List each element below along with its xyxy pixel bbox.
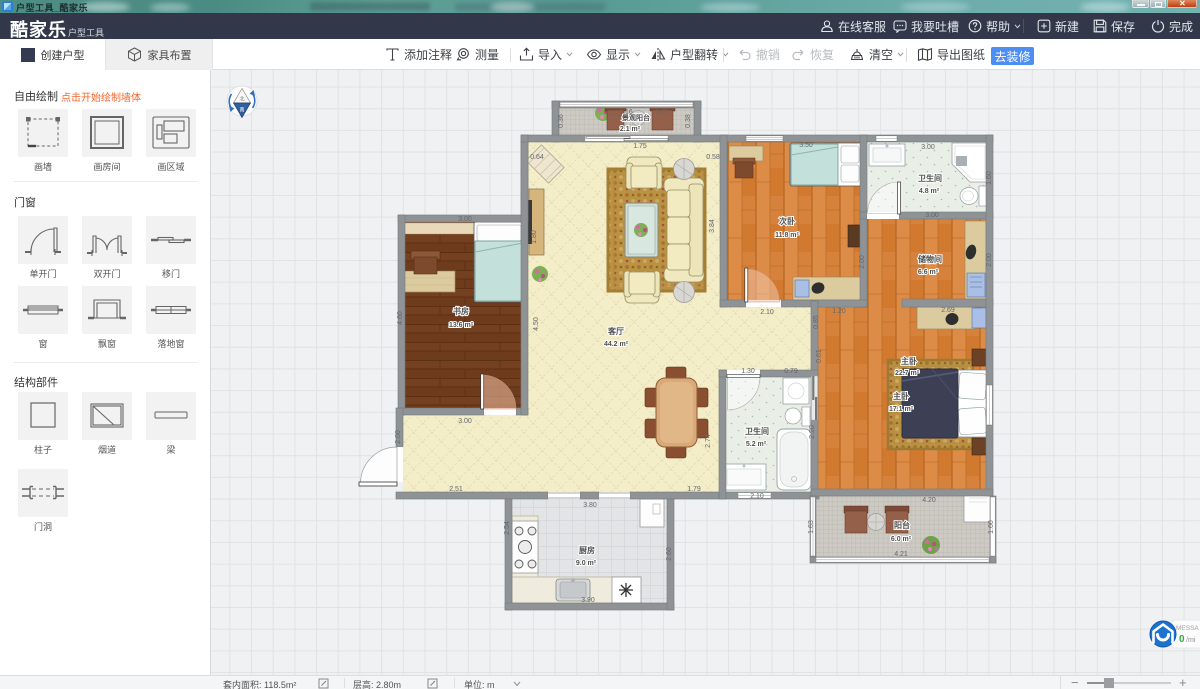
svg-text:/mi: /mi — [1186, 637, 1196, 644]
svg-text:0.61: 0.61 — [816, 349, 823, 363]
svg-text:2.54: 2.54 — [504, 521, 511, 535]
svg-text:2.00: 2.00 — [859, 255, 866, 269]
svg-text:3.80: 3.80 — [583, 502, 597, 509]
svg-text:2.10: 2.10 — [760, 309, 774, 316]
svg-text:2.20: 2.20 — [809, 425, 816, 439]
svg-text:4.21: 4.21 — [894, 551, 908, 558]
svg-text:1.20: 1.20 — [832, 308, 846, 315]
svg-text:主卧: 主卧 — [901, 356, 917, 366]
svg-text:5.2 m²: 5.2 m² — [746, 441, 767, 448]
svg-text:南: 南 — [239, 107, 244, 114]
svg-text:2.1 m²: 2.1 m² — [620, 126, 641, 133]
svg-text:客厅: 客厅 — [607, 326, 624, 336]
svg-text:1.60: 1.60 — [986, 171, 993, 185]
svg-text:3.90: 3.90 — [581, 597, 595, 604]
svg-text:主卧: 主卧 — [893, 391, 909, 401]
svg-text:书房: 书房 — [453, 306, 469, 316]
svg-text:3.00: 3.00 — [458, 216, 472, 223]
svg-text:6.6 m²: 6.6 m² — [918, 269, 939, 276]
svg-text:3.00: 3.00 — [925, 212, 939, 219]
svg-text:2.69: 2.69 — [941, 307, 955, 314]
svg-text:0.75: 0.75 — [655, 109, 669, 116]
svg-text:2.74: 2.74 — [705, 434, 712, 448]
svg-text:储物间: 储物间 — [917, 254, 942, 264]
svg-text:0.85: 0.85 — [813, 315, 820, 329]
svg-text:1.75: 1.75 — [633, 143, 647, 150]
svg-text:北: 北 — [239, 96, 244, 103]
svg-text:4.60: 4.60 — [397, 311, 404, 325]
svg-text:厨房: 厨房 — [579, 545, 595, 555]
svg-text:卫生间: 卫生间 — [918, 173, 942, 183]
svg-text:1.80: 1.80 — [531, 230, 538, 244]
svg-text:0.58: 0.58 — [706, 154, 720, 161]
svg-text:2.60: 2.60 — [666, 547, 673, 561]
svg-text:2.51: 2.51 — [449, 486, 463, 493]
svg-text:0: 0 — [1179, 634, 1185, 645]
svg-text:4.50: 4.50 — [533, 317, 540, 331]
svg-text:17.1 m²: 17.1 m² — [889, 406, 914, 413]
svg-text:1.79: 1.79 — [687, 486, 701, 493]
svg-text:11.8 m²: 11.8 m² — [775, 232, 799, 239]
svg-text:2.00: 2.00 — [395, 430, 402, 444]
svg-text:阳台: 阳台 — [894, 520, 910, 530]
svg-text:3.00: 3.00 — [458, 418, 472, 425]
svg-text:22.7 m²: 22.7 m² — [895, 370, 920, 377]
svg-text:0.79: 0.79 — [784, 368, 798, 375]
svg-text:卫生间: 卫生间 — [745, 426, 769, 436]
svg-text:1.16: 1.16 — [619, 109, 633, 116]
svg-text:13.6 m²: 13.6 m² — [449, 322, 474, 329]
svg-text:MESSA: MESSA — [1176, 625, 1199, 632]
svg-text:2.10: 2.10 — [750, 493, 764, 500]
svg-text:0.64: 0.64 — [530, 154, 544, 161]
svg-text:次卧: 次卧 — [779, 216, 795, 226]
svg-text:9.0 m²: 9.0 m² — [576, 560, 597, 567]
svg-text:4.20: 4.20 — [922, 497, 936, 504]
svg-text:3.00: 3.00 — [921, 144, 935, 151]
svg-text:44.2 m²: 44.2 m² — [604, 341, 629, 348]
svg-text:0.38: 0.38 — [685, 114, 692, 128]
svg-text:1.30: 1.30 — [741, 368, 755, 375]
svg-text:1.63: 1.63 — [808, 520, 815, 534]
svg-text:6.0 m²: 6.0 m² — [891, 536, 912, 543]
svg-text:0.36: 0.36 — [558, 114, 565, 128]
svg-text:3.84: 3.84 — [709, 219, 716, 233]
svg-text:4.8 m²: 4.8 m² — [919, 188, 940, 195]
svg-text:1.60: 1.60 — [988, 520, 995, 534]
svg-text:2.00: 2.00 — [986, 253, 993, 267]
svg-text:3.50: 3.50 — [799, 142, 813, 149]
